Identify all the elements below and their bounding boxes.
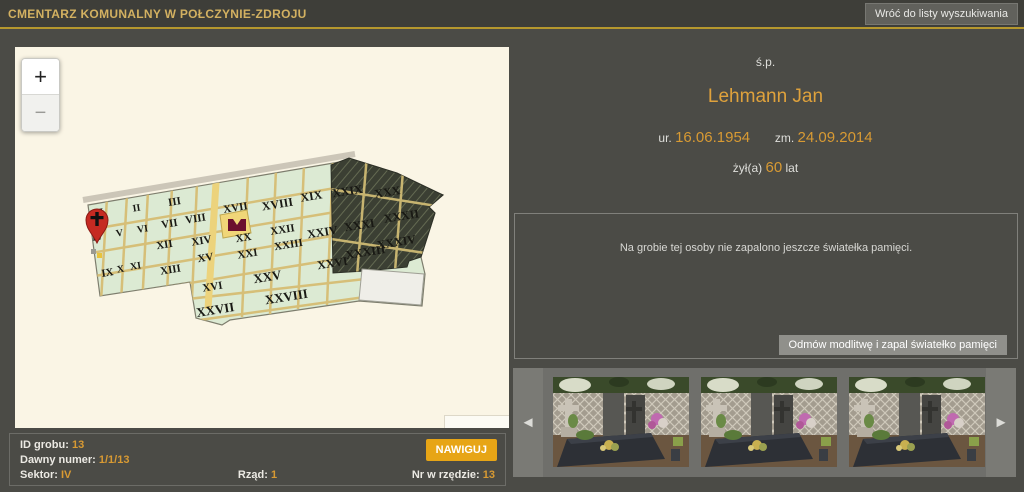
map-building-area: [359, 269, 424, 305]
row-row: Rząd: 1: [238, 469, 277, 481]
person-details: ś.p. Lehmann Jan ur. 16.06.1954 zm. 24.0…: [512, 47, 1019, 176]
page-title: CMENTARZ KOMUNALNY W POŁCZYNIE-ZDROJU: [8, 7, 307, 21]
map-zoom-control: + −: [21, 58, 60, 132]
zoom-out-button[interactable]: −: [22, 95, 59, 131]
no-candle-message: Na grobie tej osoby nie zapalono jeszcze…: [515, 242, 1017, 254]
row-value: 1: [271, 469, 277, 481]
old-number-label: Dawny numer:: [20, 454, 96, 466]
header-bar: CMENTARZ KOMUNALNY W POŁCZYNIE-ZDROJU Wr…: [0, 0, 1024, 29]
grave-info-bar: ID grobu: 13 Dawny numer: 1/1/13 Sektor:…: [9, 433, 506, 486]
carousel-prev-icon[interactable]: ◄: [513, 368, 543, 477]
map-small-gray-square: [91, 249, 96, 254]
grave-photo-1[interactable]: [553, 377, 689, 467]
row-number-value: 13: [483, 469, 495, 481]
deceased-prefix: ś.p.: [512, 55, 1019, 69]
map-sector-label: XII: [155, 238, 173, 252]
map-sector-label: XV: [197, 251, 215, 265]
navigate-button[interactable]: NAWIGUJ: [426, 439, 497, 461]
row-number-row: Nr w rzędzie: 13: [412, 469, 495, 481]
lived-years: 60: [765, 159, 782, 176]
born-date: 16.06.1954: [675, 129, 750, 146]
sector-label: Sektor:: [20, 469, 58, 481]
cemetery-map[interactable]: IIIIIIIVVVIVIIVIIIIXXXIXIIXIIIXIVXVXVIXV…: [15, 47, 509, 428]
sector-row: Sektor: IV: [20, 469, 71, 481]
grave-photo-2[interactable]: [701, 377, 837, 467]
back-to-search-button[interactable]: Wróć do listy wyszukiwania: [865, 3, 1018, 25]
lived-label: żył(a): [733, 161, 762, 175]
cemetery-app: CMENTARZ KOMUNALNY W POŁCZYNIE-ZDROJU Wr…: [0, 0, 1024, 492]
deceased-name: Lehmann Jan: [512, 86, 1019, 108]
grave-id-value: 13: [72, 439, 84, 451]
map-sector-label: VII: [160, 217, 178, 231]
grave-photo-3[interactable]: [849, 377, 985, 467]
sector-value: IV: [61, 469, 71, 481]
map-sector-label: VI: [136, 223, 149, 236]
photo-carousel: ◄ ►: [513, 368, 1016, 477]
grave-photo-image: [849, 377, 985, 467]
light-candle-button[interactable]: Odmów modlitwę i zapal światełko pamięci: [779, 335, 1007, 355]
age-line: żył(a) 60 lat: [512, 159, 1019, 176]
zoom-in-button[interactable]: +: [22, 59, 59, 95]
grave-photo-image: [701, 377, 837, 467]
map-sector-label: III: [167, 195, 182, 209]
lived-suffix: lat: [786, 161, 799, 175]
memory-candle-box: Na grobie tej osoby nie zapalono jeszcze…: [514, 213, 1018, 359]
row-number-label: Nr w rzędzie:: [412, 469, 480, 481]
old-number-value: 1/1/13: [99, 454, 130, 466]
carousel-next-icon[interactable]: ►: [986, 368, 1016, 477]
map-sector-label: IX: [101, 266, 115, 280]
born-label: ur.: [658, 131, 671, 145]
old-number-row: Dawny numer: 1/1/13: [20, 454, 129, 466]
grave-photo-image: [553, 377, 689, 467]
map-sector-label: XI: [129, 260, 142, 273]
grave-id-label: ID grobu:: [20, 439, 69, 451]
grave-id-row: ID grobu: 13: [20, 439, 84, 451]
map-sector-label: XX: [235, 231, 253, 245]
photo-strip: [553, 377, 985, 468]
cemetery-map-panel[interactable]: IIIIIIIVVVIVIIVIIIIXXXIXIIXIIIXIVXVXVIXV…: [15, 47, 509, 428]
life-dates: ur. 16.06.1954 zm. 24.09.2014: [512, 129, 1019, 146]
map-attribution: [444, 415, 509, 428]
map-small-yellow-square: [97, 253, 102, 258]
row-label: Rząd:: [238, 469, 268, 481]
died-label: zm.: [775, 131, 794, 145]
died-date: 24.09.2014: [798, 129, 873, 146]
